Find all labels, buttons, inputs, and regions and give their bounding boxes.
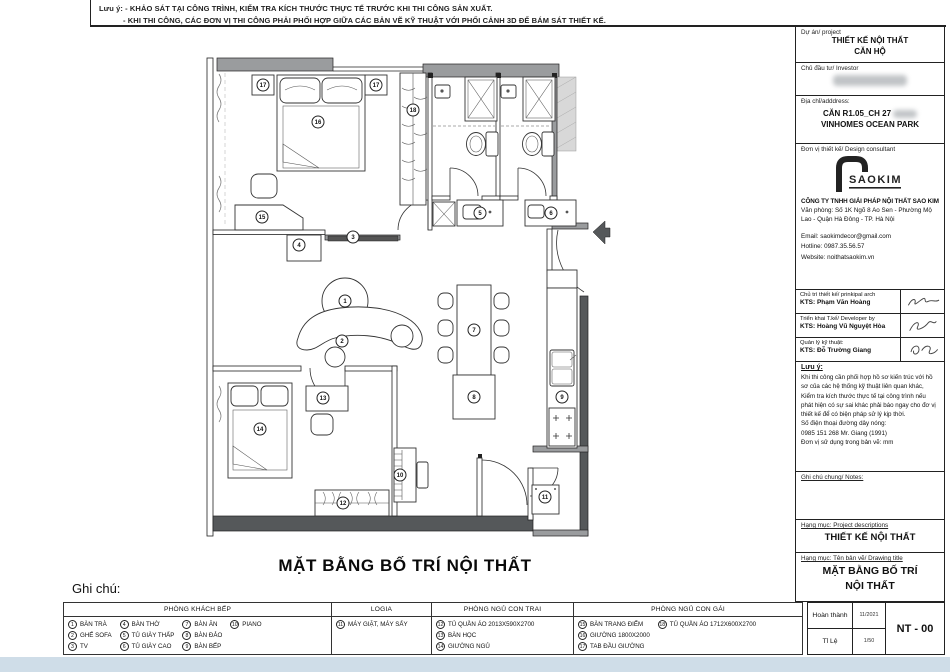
canvas-background [0, 657, 950, 672]
legend-item-label: BÀN ĐẢO [194, 632, 222, 639]
drawing-title-section: Hạng mục: Tên bản vẽ/ Drawing title MẶT … [796, 553, 944, 601]
legend-group-header: LOGIA [332, 603, 431, 617]
legend-item-label: TỦ GIÀY THẤP [132, 632, 175, 639]
company-website: Website: noithatsaokim.vn [801, 253, 939, 262]
callout-number: 13 [320, 396, 327, 402]
legend-group: PHÒNG NGỦ CON GÁI15BÀN TRANG ĐIỂM16GIƯỜN… [574, 603, 802, 654]
legend-item: 14GIƯỜNG NGỦ [436, 642, 534, 651]
consultant-label: Đơn vị thiết kế/ Design consultant [801, 146, 939, 153]
legend-item-number: 6 [120, 642, 129, 651]
legend-item: 17TAB ĐẦU GIƯỜNG [578, 642, 650, 651]
investor-name-redacted [833, 75, 907, 86]
arch2-label: Triển khai T.kế/ Developer by [800, 316, 896, 322]
legend-group-header: PHÒNG NGỦ CON GÁI [574, 603, 802, 617]
piano-bench [417, 462, 428, 488]
legend-item: 5TỦ GIÀY THẤP [120, 631, 175, 640]
descriptions-section: Hạng mục: Project descriptions THIẾT KẾ … [796, 520, 944, 553]
legend-item-number: 14 [436, 642, 445, 651]
legend-item: 3TV [68, 642, 112, 651]
remark-phone-1: Số điện thoại đường dây nóng: [801, 419, 939, 428]
toilet-1 [486, 132, 498, 156]
callout-number: 18 [410, 108, 417, 114]
callout-number: 12 [340, 501, 347, 507]
legend-item: 15BÀN TRANG ĐIỂM [578, 620, 650, 629]
callout-number: 15 [259, 215, 266, 221]
arch2-signature [900, 314, 944, 337]
legend-item-number: 7 [182, 620, 191, 629]
legend-item-label: TỦ GIÀY CAO [132, 643, 172, 650]
address-label: Địa chỉ/adddress: [801, 98, 939, 105]
legend-item-number: 4 [120, 620, 129, 629]
legend-item-label: BÀN TRANG ĐIỂM [590, 621, 643, 628]
remark-unit: Đơn vị sử dụng trong bản vẽ: mm [801, 438, 939, 447]
legend-item-label: GIƯỜNG 1800X2000 [590, 632, 650, 639]
principal-architect-row: Chủ trì thiết kế/ prinkipal arch KTS: Ph… [796, 290, 944, 314]
legend-item-label: TỦ QUẦN ÁO 2013X590X2700 [448, 621, 534, 628]
remark-phone-2: 0985 151 268 Mr. Giang (1991) [801, 429, 939, 438]
drawing-title-2: NỘI THẤT [801, 579, 939, 594]
drawing-viewer: { "notes": { "line1": "Lưu ý: - KHẢO SÁT… [0, 0, 950, 672]
note-line-2: - KHI THI CÔNG, CÁC ĐƠN VỊ THI CÔNG PHẢI… [99, 15, 946, 27]
legend-table: PHÒNG KHÁCH BẾP1BÀN TRÀ2GHẾ SOFA3TV4BÀN … [63, 602, 803, 655]
revision-table: Hoàn thành 11/2021 Tỉ Lệ 1/50 NT - 00 [807, 602, 945, 655]
scale-value: 1/50 [853, 629, 886, 655]
legend-item: 13BÀN HỌC [436, 631, 534, 640]
legend-item: 18TỦ QUẦN ÁO 1712X600X2700 [658, 620, 756, 629]
general-notes-label: Ghi chú chung/ Notes: [801, 474, 939, 481]
boy-bedroom-furniture [228, 383, 389, 516]
drawing-sheet: Lưu ý: - KHẢO SÁT TẠI CÔNG TRÌNH, KIỂM T… [0, 0, 950, 657]
legend-item-number: 3 [68, 642, 77, 651]
legend-item-label: GHẾ SOFA [80, 632, 112, 639]
floor-plan: 12345678910111213141516171718 [195, 48, 615, 548]
legend-item: 16GIƯỜNG 1800X2000 [578, 631, 650, 640]
legend-group: LOGIA11MÁY GIẶT, MÁY SẤY [332, 603, 432, 654]
vanity-table [235, 205, 303, 230]
plan-title: MẶT BẰNG BỐ TRÍ NỘI THẤT [195, 556, 615, 576]
general-notes: Lưu ý: - KHẢO SÁT TẠI CÔNG TRÌNH, KIỂM T… [90, 0, 946, 27]
legend-item-number: 15 [578, 620, 587, 629]
company-email: Email: saokimdecor@gmail.com [801, 232, 939, 241]
callout-number: 17 [373, 83, 380, 89]
legend-item-number: 8 [182, 631, 191, 640]
investor-section: Chủ đầu tư/ Investor [796, 63, 944, 96]
legend-item-number: 10 [230, 620, 239, 629]
technical-manager-row: Quản lý kỹ thuật: KTS: Đỗ Trường Giang [796, 338, 944, 362]
legend-item-number: 18 [658, 620, 667, 629]
general-notes-section: Ghi chú chung/ Notes: [796, 472, 944, 520]
callout-number: 17 [260, 83, 267, 89]
legend-item-number: 9 [182, 642, 191, 651]
saokim-logo-icon: SAOKIM [801, 154, 941, 196]
legend-item-number: 1 [68, 620, 77, 629]
legend-item-label: GIƯỜNG NGỦ [448, 643, 490, 650]
arch1-label: Chủ trì thiết kế/ prinkipal arch [800, 292, 896, 298]
cooktop [549, 408, 575, 446]
entry-arrow-icon [593, 221, 610, 244]
legend-item-label: BÀN HỌC [448, 632, 476, 639]
arch3-signature [900, 338, 944, 361]
arch2-name: KTS: Hoàng Vũ Nguyệt Hòa [800, 323, 896, 330]
legend-item-number: 12 [436, 620, 445, 629]
address-redacted [893, 110, 917, 118]
project-section: Dự án/ project THIẾT KẾ NỘI THẤT CĂN HỘ [796, 27, 944, 63]
sheet-number: NT - 00 [886, 603, 944, 654]
desk-chair [311, 414, 333, 435]
consultant-section: Đơn vị thiết kế/ Design consultant SAOKI… [796, 144, 944, 290]
arch3-name: KTS: Đỗ Trường Giang [800, 347, 896, 354]
legend-item-label: TAB ĐẦU GIƯỜNG [590, 643, 644, 650]
legend-item-number: 17 [578, 642, 587, 651]
kitchen-sink [550, 350, 574, 386]
legend-item: 11MÁY GIẶT, MÁY SẤY [336, 620, 408, 629]
legend-item: 4BÀN THỜ [120, 620, 175, 629]
legend-item-label: BÀN THỜ [132, 621, 160, 628]
legend-item: 6TỦ GIÀY CAO [120, 642, 175, 651]
address-section: Địa chỉ/adddress: CĂN R1.05_CH 27 VINHOM… [796, 96, 944, 144]
company-name: CÔNG TY TNHH GIẢI PHÁP NỘI THẤT SAO KIM [801, 198, 939, 205]
address-line-2: VINHOMES OCEAN PARK [801, 120, 939, 131]
callout-number: 16 [315, 120, 322, 126]
legend-group: PHÒNG KHÁCH BẾP1BÀN TRÀ2GHẾ SOFA3TV4BÀN … [64, 603, 332, 654]
project-name-2: CĂN HỘ [801, 47, 939, 58]
developer-architect-row: Triển khai T.kế/ Developer by KTS: Hoàng… [796, 314, 944, 338]
arch3-label: Quản lý kỹ thuật: [800, 340, 896, 346]
callout-number: 14 [257, 427, 264, 433]
project-label: Dự án/ project [801, 29, 939, 36]
arch1-signature [900, 290, 944, 313]
legend-item-label: TỦ QUẦN ÁO 1712X600X2700 [670, 621, 756, 628]
remark-body: Khi thi công cần phối hợp hồ sơ kiến trú… [801, 373, 939, 419]
legend-item-number: 11 [336, 620, 345, 629]
legend-item-label: MÁY GIẶT, MÁY SẤY [348, 621, 408, 628]
company-office: Văn phòng: Số 1K Ngõ 8 Ao Sen - Phường M… [801, 206, 939, 224]
completed-label: Hoàn thành [808, 603, 853, 629]
legend-item: 9BÀN BẾP [182, 642, 222, 651]
drawing-title-label: Hạng mục: Tên bản vẽ/ Drawing title [801, 555, 939, 562]
toilet-2 [542, 132, 554, 156]
legend-group: PHÒNG NGỦ CON TRAI12TỦ QUẦN ÁO 2013X590X… [432, 603, 574, 654]
callout-number: 10 [397, 473, 404, 479]
legend-item-number: 2 [68, 631, 77, 640]
tv [328, 236, 398, 241]
legend-item-label: PIANO [242, 621, 261, 628]
girl-bedroom-furniture [235, 73, 427, 230]
legend-item-label: BÀN BẾP [194, 643, 221, 650]
company-hotline: Hotline: 0987.35.56.57 [801, 242, 939, 251]
legend-item-number: 5 [120, 631, 129, 640]
legend-item: 12TỦ QUẦN ÁO 2013X590X2700 [436, 620, 534, 629]
project-name-1: THIẾT KẾ NỘI THẤT [801, 36, 939, 47]
svg-text:SAOKIM: SAOKIM [849, 174, 902, 186]
bathroom-1 [433, 77, 503, 226]
legend-item: 2GHẾ SOFA [68, 631, 112, 640]
legend-group-header: PHÒNG NGỦ CON TRAI [432, 603, 573, 617]
scale-label: Tỉ Lệ [808, 629, 853, 655]
title-block: Dự án/ project THIẾT KẾ NỘI THẤT CĂN HỘ … [795, 27, 945, 602]
completed-value: 11/2021 [853, 603, 886, 629]
dining-kitchen [438, 270, 577, 448]
kitchen-cabinet [547, 270, 577, 288]
vanity-stool [251, 174, 277, 198]
descriptions-label: Hạng mục: Project descriptions [801, 522, 939, 529]
legend-item: 7BÀN ĂN [182, 620, 222, 629]
address-line-1: CĂN R1.05_CH 27 [801, 109, 939, 120]
legend-item-number: 16 [578, 631, 587, 640]
legend-item-label: TV [80, 643, 88, 650]
remark-title: Lưu ý: [801, 364, 939, 371]
note-line-1: Lưu ý: - KHẢO SÁT TẠI CÔNG TRÌNH, KIỂM T… [99, 3, 946, 15]
legend-item-label: BÀN ĂN [194, 621, 217, 628]
legend-title: Ghi chú: [72, 581, 120, 596]
legend-item-label: BÀN TRÀ [80, 621, 107, 628]
callout-number: 11 [542, 495, 549, 501]
drawing-title-1: MẶT BẰNG BỐ TRÍ [801, 564, 939, 579]
legend-item-number: 13 [436, 631, 445, 640]
legend-item: 10PIANO [230, 620, 261, 629]
legend-item: 1BÀN TRÀ [68, 620, 112, 629]
arch1-name: KTS: Phạm Văn Hoàng [800, 299, 896, 306]
investor-label: Chủ đầu tư/ Investor [801, 65, 939, 72]
descriptions-value: THIẾT KẾ NỘI THẤT [801, 532, 939, 543]
remark-section: Lưu ý: Khi thi công cần phối hợp hồ sơ k… [796, 362, 944, 472]
legend-item: 8BÀN ĐẢO [182, 631, 222, 640]
legend-group-header: PHÒNG KHÁCH BẾP [64, 603, 331, 617]
